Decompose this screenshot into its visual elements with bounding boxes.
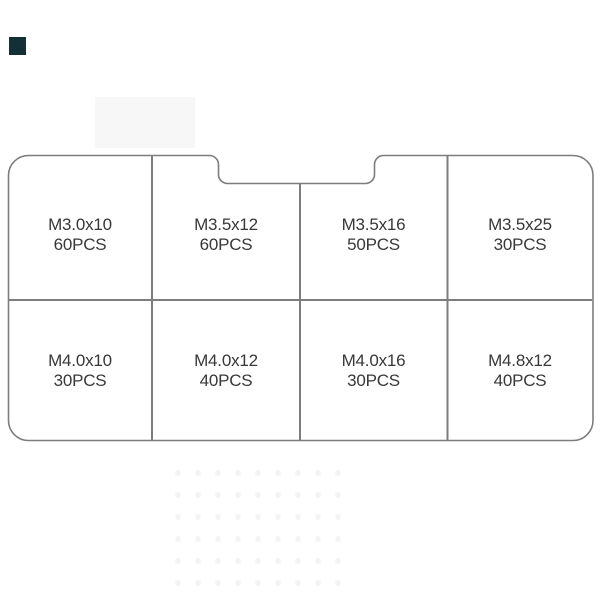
compartment-cell: M3.5x25 30PCS (447, 170, 593, 300)
compartment-cell: M4.8x12 40PCS (447, 306, 593, 436)
compartment-size-label: M4.0x16 (342, 351, 406, 371)
compartment-cell: M3.5x12 60PCS (152, 170, 300, 300)
compartment-qty-label: 40PCS (200, 371, 253, 391)
compartment-size-label: M4.0x12 (194, 351, 258, 371)
compartment-cell: M3.5x16 50PCS (300, 170, 447, 300)
compartment-qty-label: 60PCS (54, 235, 107, 255)
compartment-cell: M3.0x10 60PCS (8, 170, 152, 300)
compartment-qty-label: 30PCS (54, 371, 107, 391)
compartment-cell: M4.0x10 30PCS (8, 306, 152, 436)
product-diagram: M3.0x10 60PCS M3.5x12 60PCS M3.5x16 50PC… (0, 0, 600, 600)
compartment-cell: M4.0x12 40PCS (152, 306, 300, 436)
compartment-cell: M4.0x16 30PCS (300, 306, 447, 436)
compartment-size-label: M3.5x16 (342, 215, 406, 235)
compartment-qty-label: 30PCS (494, 235, 547, 255)
compartment-qty-label: 30PCS (347, 371, 400, 391)
compartment-size-label: M3.0x10 (48, 215, 112, 235)
organizer-box-outline (0, 0, 600, 600)
compartment-size-label: M4.0x10 (48, 351, 112, 371)
compartment-qty-label: 40PCS (494, 371, 547, 391)
compartment-qty-label: 50PCS (347, 235, 400, 255)
compartment-size-label: M3.5x12 (194, 215, 258, 235)
compartment-size-label: M3.5x25 (488, 215, 552, 235)
compartment-qty-label: 60PCS (200, 235, 253, 255)
compartment-size-label: M4.8x12 (488, 351, 552, 371)
